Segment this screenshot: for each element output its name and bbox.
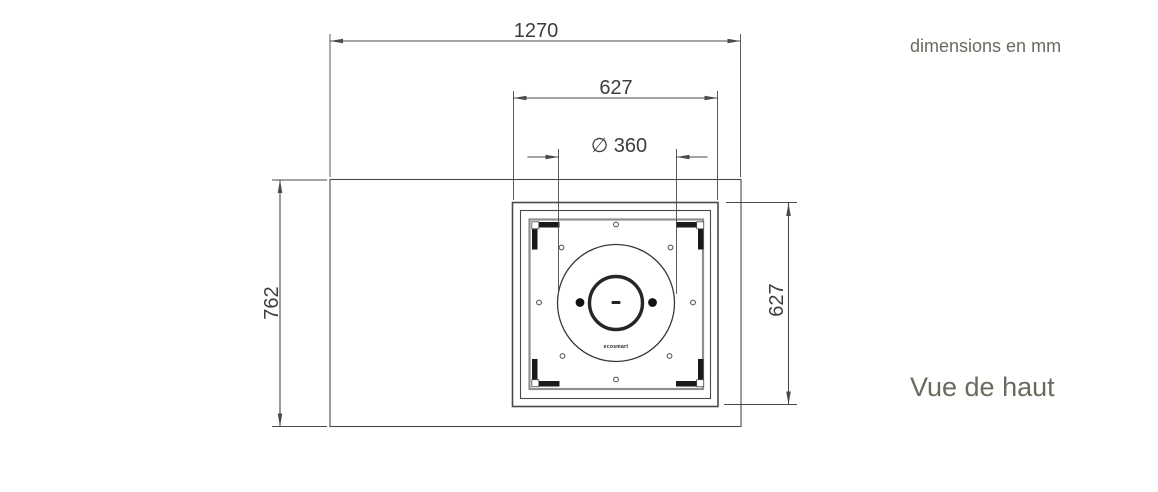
burner: ecosmart	[558, 245, 675, 362]
corner-bracket-top-left	[532, 222, 560, 250]
brand-mark: ecosmart	[604, 344, 629, 350]
bracket-arm	[698, 359, 704, 380]
bracket-notch	[697, 222, 704, 229]
bracket-arm	[532, 229, 538, 250]
bracket-arm	[676, 222, 697, 228]
view-title: Vue de haut	[910, 372, 1055, 402]
bracket-notch	[532, 222, 539, 229]
arrowhead-bottom	[786, 392, 791, 405]
bracket-arm	[676, 381, 697, 387]
arrowhead-bottom	[278, 414, 283, 427]
dim-label-burner-box-depth: 627	[766, 283, 788, 316]
arrowhead-left	[330, 39, 343, 44]
screw-hole	[691, 300, 696, 305]
top-view-drawing: ecosmart 1270 627 ∅ 36	[0, 0, 1158, 492]
bracket-arm	[698, 229, 704, 250]
technical-drawing-page: ecosmart 1270 627 ∅ 36	[0, 0, 1158, 492]
bracket-arm	[539, 381, 560, 387]
bracket-arm	[539, 222, 560, 228]
screw-hole	[560, 354, 565, 359]
screw-hole	[559, 245, 564, 250]
burner-center-dash	[612, 301, 621, 304]
screw-hole	[614, 222, 619, 227]
corner-bracket-top-right	[676, 222, 704, 250]
corner-bracket-bottom-left	[532, 359, 560, 387]
bracket-notch	[697, 380, 704, 387]
dim-label-table-width: 1270	[514, 20, 559, 42]
dim-burner-box-depth: 627	[724, 203, 797, 405]
arrowhead-left	[546, 155, 559, 160]
arrowhead-right	[705, 96, 718, 101]
screw-hole	[537, 300, 542, 305]
arrowhead-top	[786, 203, 791, 216]
bracket-arm	[532, 359, 538, 380]
burner-port-right	[648, 298, 657, 307]
arrowhead-right	[677, 155, 690, 160]
screw-hole	[668, 245, 673, 250]
dim-label-burner-diameter: ∅ 360	[591, 135, 647, 157]
bracket-notch	[532, 380, 539, 387]
dim-burner-diameter: ∅ 360	[528, 135, 707, 294]
burner-port-left	[576, 298, 585, 307]
units-note: dimensions en mm	[910, 36, 1061, 56]
screw-hole	[667, 354, 672, 359]
dim-table-depth: 762	[261, 180, 327, 427]
arrowhead-left	[514, 96, 527, 101]
arrowhead-top	[278, 180, 283, 193]
screw-hole	[614, 377, 619, 382]
dim-label-table-depth: 762	[261, 286, 283, 319]
corner-bracket-bottom-right	[676, 359, 704, 387]
dim-label-burner-box-width: 627	[599, 77, 632, 99]
arrowhead-right	[728, 39, 741, 44]
